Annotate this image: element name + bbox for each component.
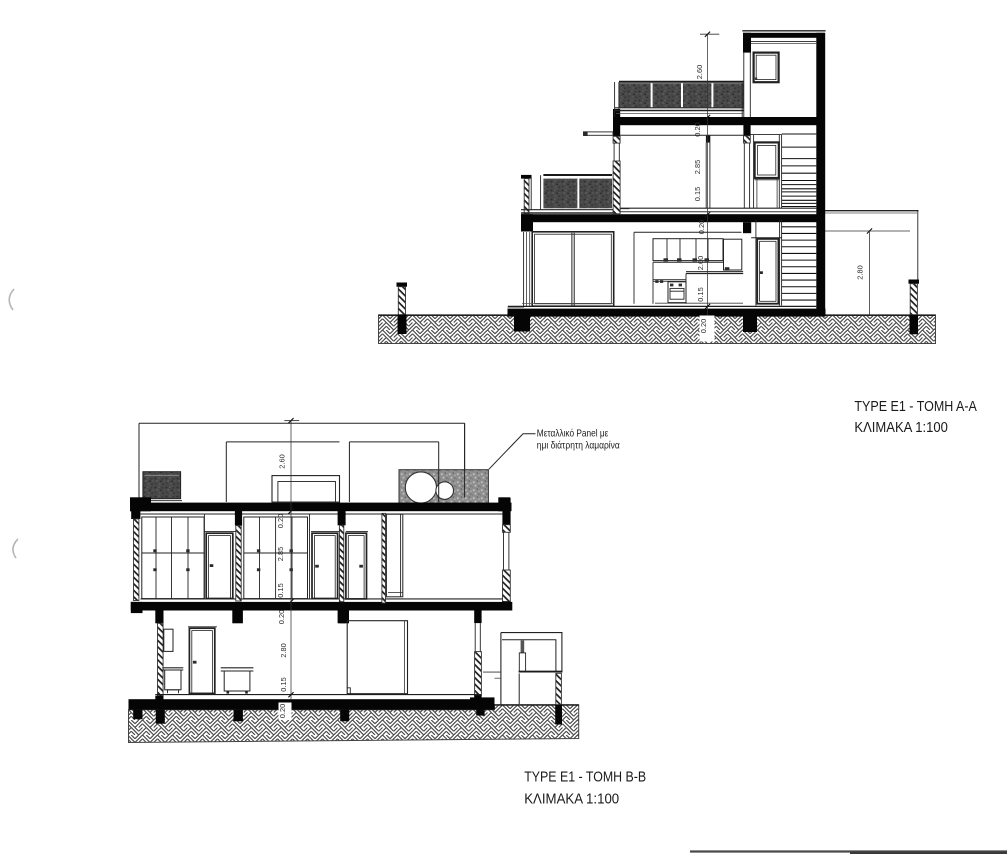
svg-text:0.15: 0.15 [693, 187, 702, 201]
svg-text:2.80: 2.80 [279, 643, 288, 657]
svg-text:0.20: 0.20 [697, 220, 706, 234]
svg-text:0.20: 0.20 [278, 704, 287, 718]
svg-text:2.85: 2.85 [693, 160, 702, 174]
svg-text:0.15: 0.15 [276, 583, 285, 597]
svg-text:0.20: 0.20 [277, 610, 286, 624]
svg-text:0.20: 0.20 [693, 122, 702, 136]
svg-text:0.15: 0.15 [279, 677, 288, 691]
svg-text:TYPE E1 - TOMH A-A: TYPE E1 - TOMH A-A [854, 399, 977, 415]
svg-text:0.20: 0.20 [699, 319, 708, 333]
svg-text:ΚΛΙΜΑΚΑ 1:100: ΚΛΙΜΑΚΑ 1:100 [854, 420, 948, 436]
svg-text:2.60: 2.60 [695, 65, 704, 79]
svg-text:0.20: 0.20 [276, 514, 285, 528]
svg-text:ημι διάτρητη λαμαρίνα: ημι διάτρητη λαμαρίνα [537, 439, 620, 451]
svg-text:2.60: 2.60 [277, 454, 286, 468]
svg-text:Μεταλλικό Panel με: Μεταλλικό Panel με [537, 428, 609, 440]
svg-text:2.80: 2.80 [856, 265, 865, 279]
svg-text:2.85: 2.85 [276, 547, 285, 561]
svg-text:TYPE E1 - TOMH B-B: TYPE E1 - TOMH B-B [524, 769, 646, 785]
svg-text:ΚΛΙΜΑΚΑ 1:100: ΚΛΙΜΑΚΑ 1:100 [524, 792, 619, 808]
svg-text:2.60: 2.60 [696, 256, 705, 270]
svg-text:0.15: 0.15 [696, 287, 705, 301]
